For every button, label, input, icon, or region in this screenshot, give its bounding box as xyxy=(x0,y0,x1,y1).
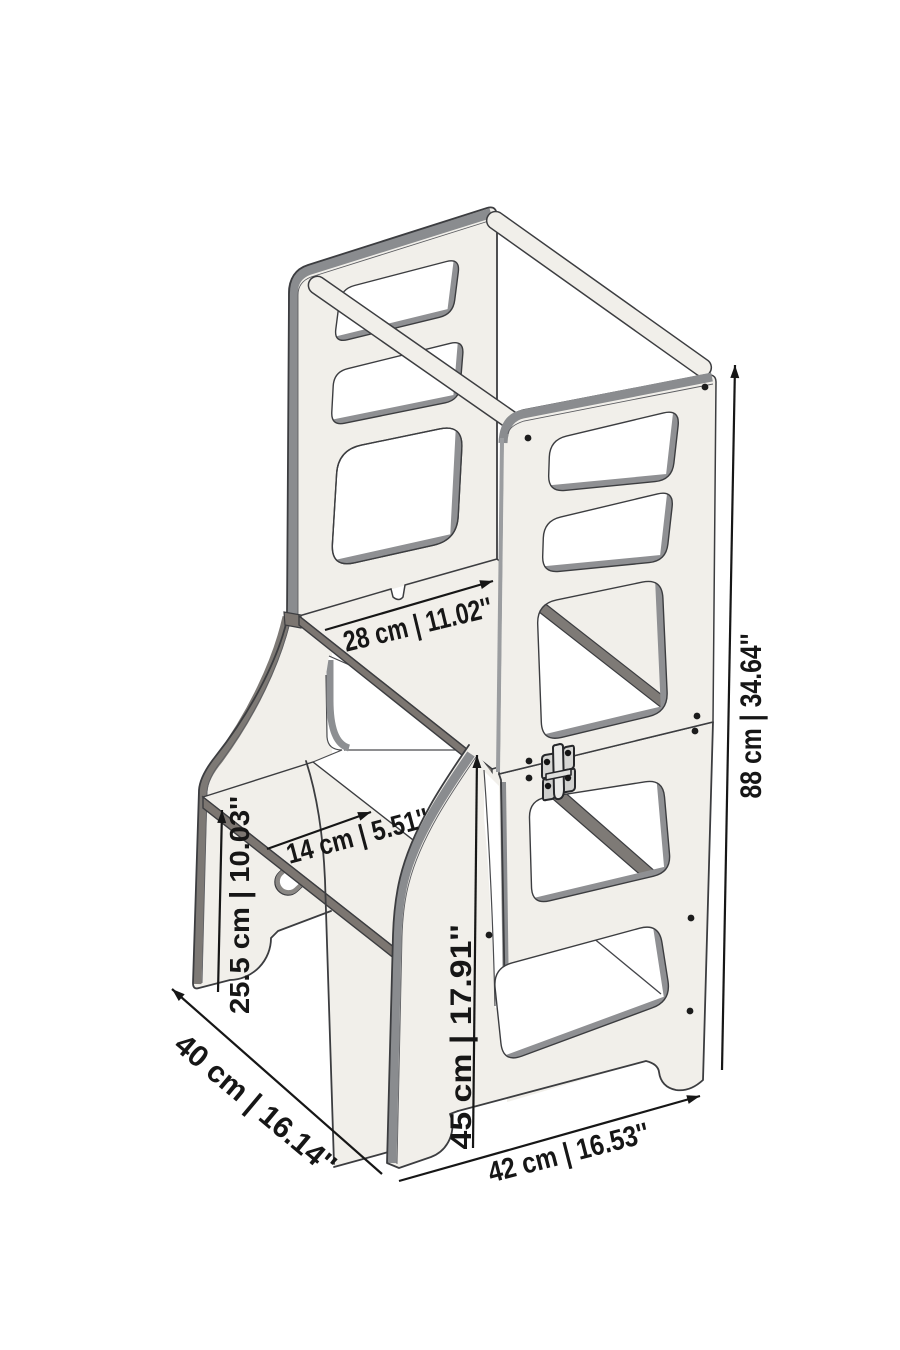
svg-text:42 cm | 16.53'': 42 cm | 16.53'' xyxy=(485,1117,653,1189)
svg-text:25.5 cm | 10.03'': 25.5 cm | 10.03'' xyxy=(224,796,255,1014)
svg-text:45 cm | 17.91'': 45 cm | 17.91'' xyxy=(445,925,478,1150)
svg-text:40 cm | 16.14'': 40 cm | 16.14'' xyxy=(168,1028,342,1182)
svg-text:88 cm | 34.64'': 88 cm | 34.64'' xyxy=(735,634,768,799)
